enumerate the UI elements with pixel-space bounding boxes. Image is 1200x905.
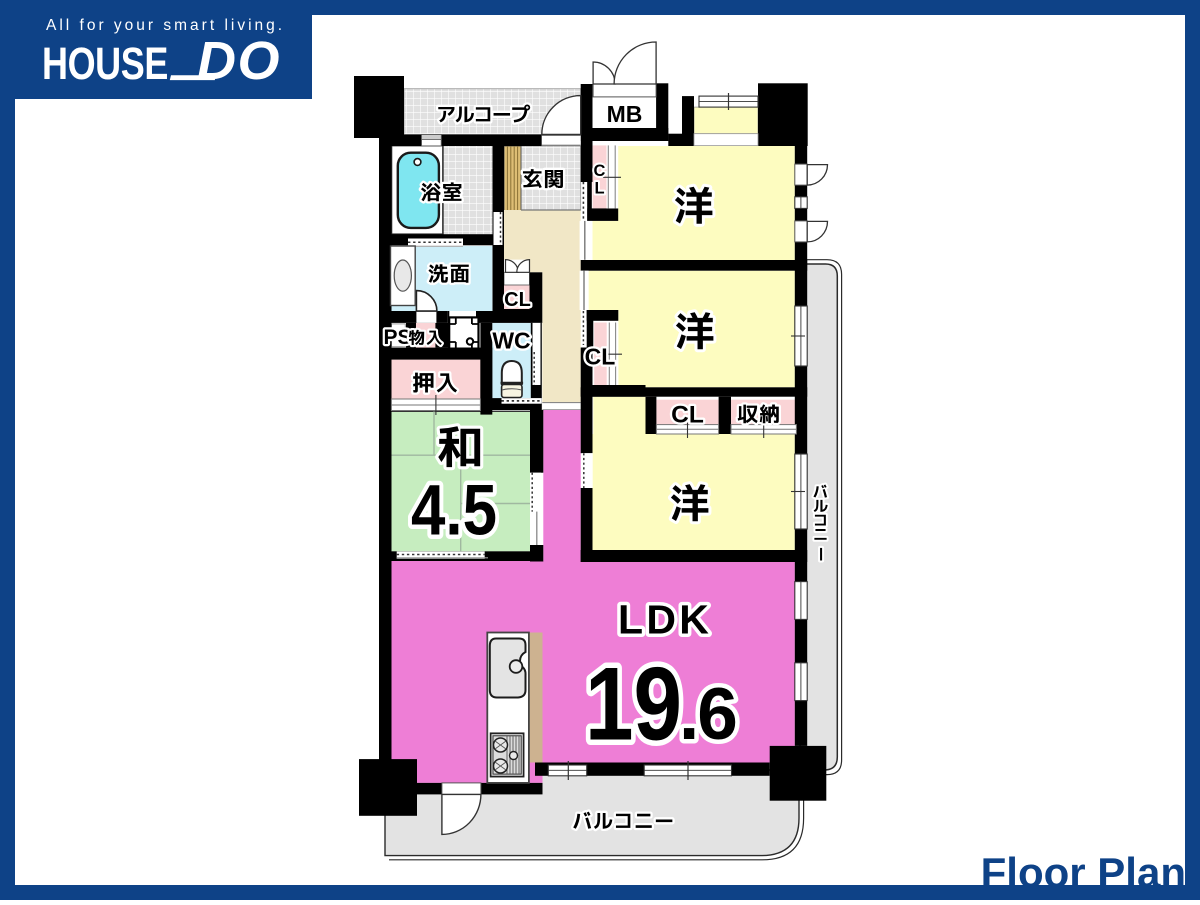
svg-text:.6: .6 (679, 674, 736, 755)
svg-text:L: L (594, 180, 604, 198)
svg-text:Floor Plan: Floor Plan (981, 849, 1186, 896)
svg-text:DO: DO (197, 31, 281, 91)
svg-text:CL: CL (504, 289, 531, 311)
svg-text:LDK: LDK (618, 597, 712, 643)
svg-text:19: 19 (585, 647, 682, 763)
svg-text:MB: MB (607, 101, 643, 127)
svg-text:HOUSE: HOUSE (42, 38, 168, 89)
svg-text:4.5: 4.5 (411, 472, 497, 551)
svg-text:CL: CL (585, 344, 616, 370)
svg-text:WC: WC (492, 328, 530, 354)
svg-text:CL: CL (671, 402, 704, 429)
svg-text:C: C (594, 162, 606, 180)
